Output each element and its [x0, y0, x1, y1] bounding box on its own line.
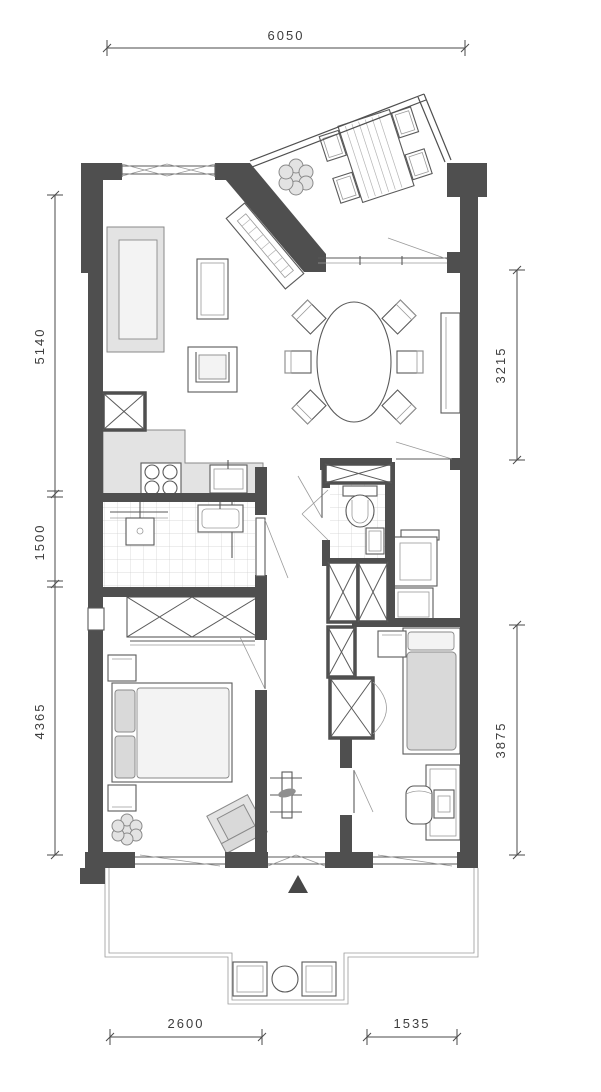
dimension-bottom: 2600 1535 — [106, 1016, 461, 1045]
cabinet — [441, 313, 460, 413]
wc-washbasin — [366, 528, 384, 554]
utility-door — [396, 442, 452, 459]
balcony-chair — [233, 962, 267, 996]
balcony-chair — [302, 962, 336, 996]
bathroom-door — [256, 518, 288, 578]
coat-rack — [270, 772, 302, 818]
wardrobe — [127, 597, 258, 645]
shaft-hall-lower — [328, 627, 355, 677]
washing-machine — [394, 530, 439, 586]
coffee-table — [197, 259, 228, 319]
kitchen-counter — [103, 430, 263, 497]
dim-label-left-bathroom: 1500 — [32, 524, 47, 561]
double-bed — [112, 683, 232, 782]
nightstand — [108, 655, 136, 681]
dining-chair — [382, 390, 416, 424]
dining-chair — [382, 300, 416, 334]
balcony-table — [272, 966, 298, 992]
dim-label-left-living: 5140 — [32, 328, 47, 365]
single-bed — [403, 628, 460, 754]
dim-label-overall-width: 6050 — [268, 28, 305, 43]
shaft-kitchen — [103, 393, 145, 430]
dimension-right: 3215 3875 — [493, 266, 525, 859]
shaft-hall-mid — [328, 562, 388, 622]
armchair — [188, 347, 237, 392]
dim-label-bottom-bedroom: 2600 — [168, 1016, 205, 1031]
dining-table — [317, 302, 391, 422]
monitor — [434, 790, 454, 818]
desk-chair — [406, 786, 432, 824]
dryer — [394, 588, 433, 621]
dimension-top: 6050 — [103, 28, 469, 56]
hall-door — [298, 470, 322, 518]
dim-label-left-bedroom: 4365 — [32, 703, 47, 740]
floor-plan: 6050 5140 1500 4365 3215 3875 — [0, 0, 601, 1092]
dim-label-bottom-bedroom2: 1535 — [394, 1016, 431, 1031]
wall-niche — [88, 608, 104, 630]
dimension-left: 5140 1500 4365 — [32, 191, 63, 859]
kitchen-sink — [210, 460, 247, 493]
terrace-sliding-door — [318, 238, 447, 265]
nightstand — [108, 785, 136, 811]
hall-window — [268, 855, 325, 866]
bedroom2-window — [373, 855, 457, 866]
bedroom2-door — [354, 770, 373, 813]
living-room-window — [122, 164, 215, 177]
entrance-arrow — [288, 875, 308, 893]
bedroom-window — [135, 855, 225, 866]
dining-chair — [397, 351, 423, 373]
dining-chair — [292, 390, 326, 424]
dim-label-right-bedroom2: 3875 — [493, 722, 508, 759]
wc-door — [302, 490, 328, 540]
dining-chair — [285, 351, 311, 373]
closet-bedroom2 — [330, 678, 387, 738]
dim-label-right-dining: 3215 — [493, 347, 508, 384]
sofa — [107, 227, 164, 352]
cooktop — [141, 463, 181, 496]
bathroom-washbasin — [198, 500, 243, 532]
terrace-plant — [279, 159, 313, 195]
shaft-hall-top — [325, 464, 392, 483]
shelf — [378, 631, 406, 657]
bedroom-plant — [112, 814, 142, 845]
dining-chair — [292, 300, 326, 334]
